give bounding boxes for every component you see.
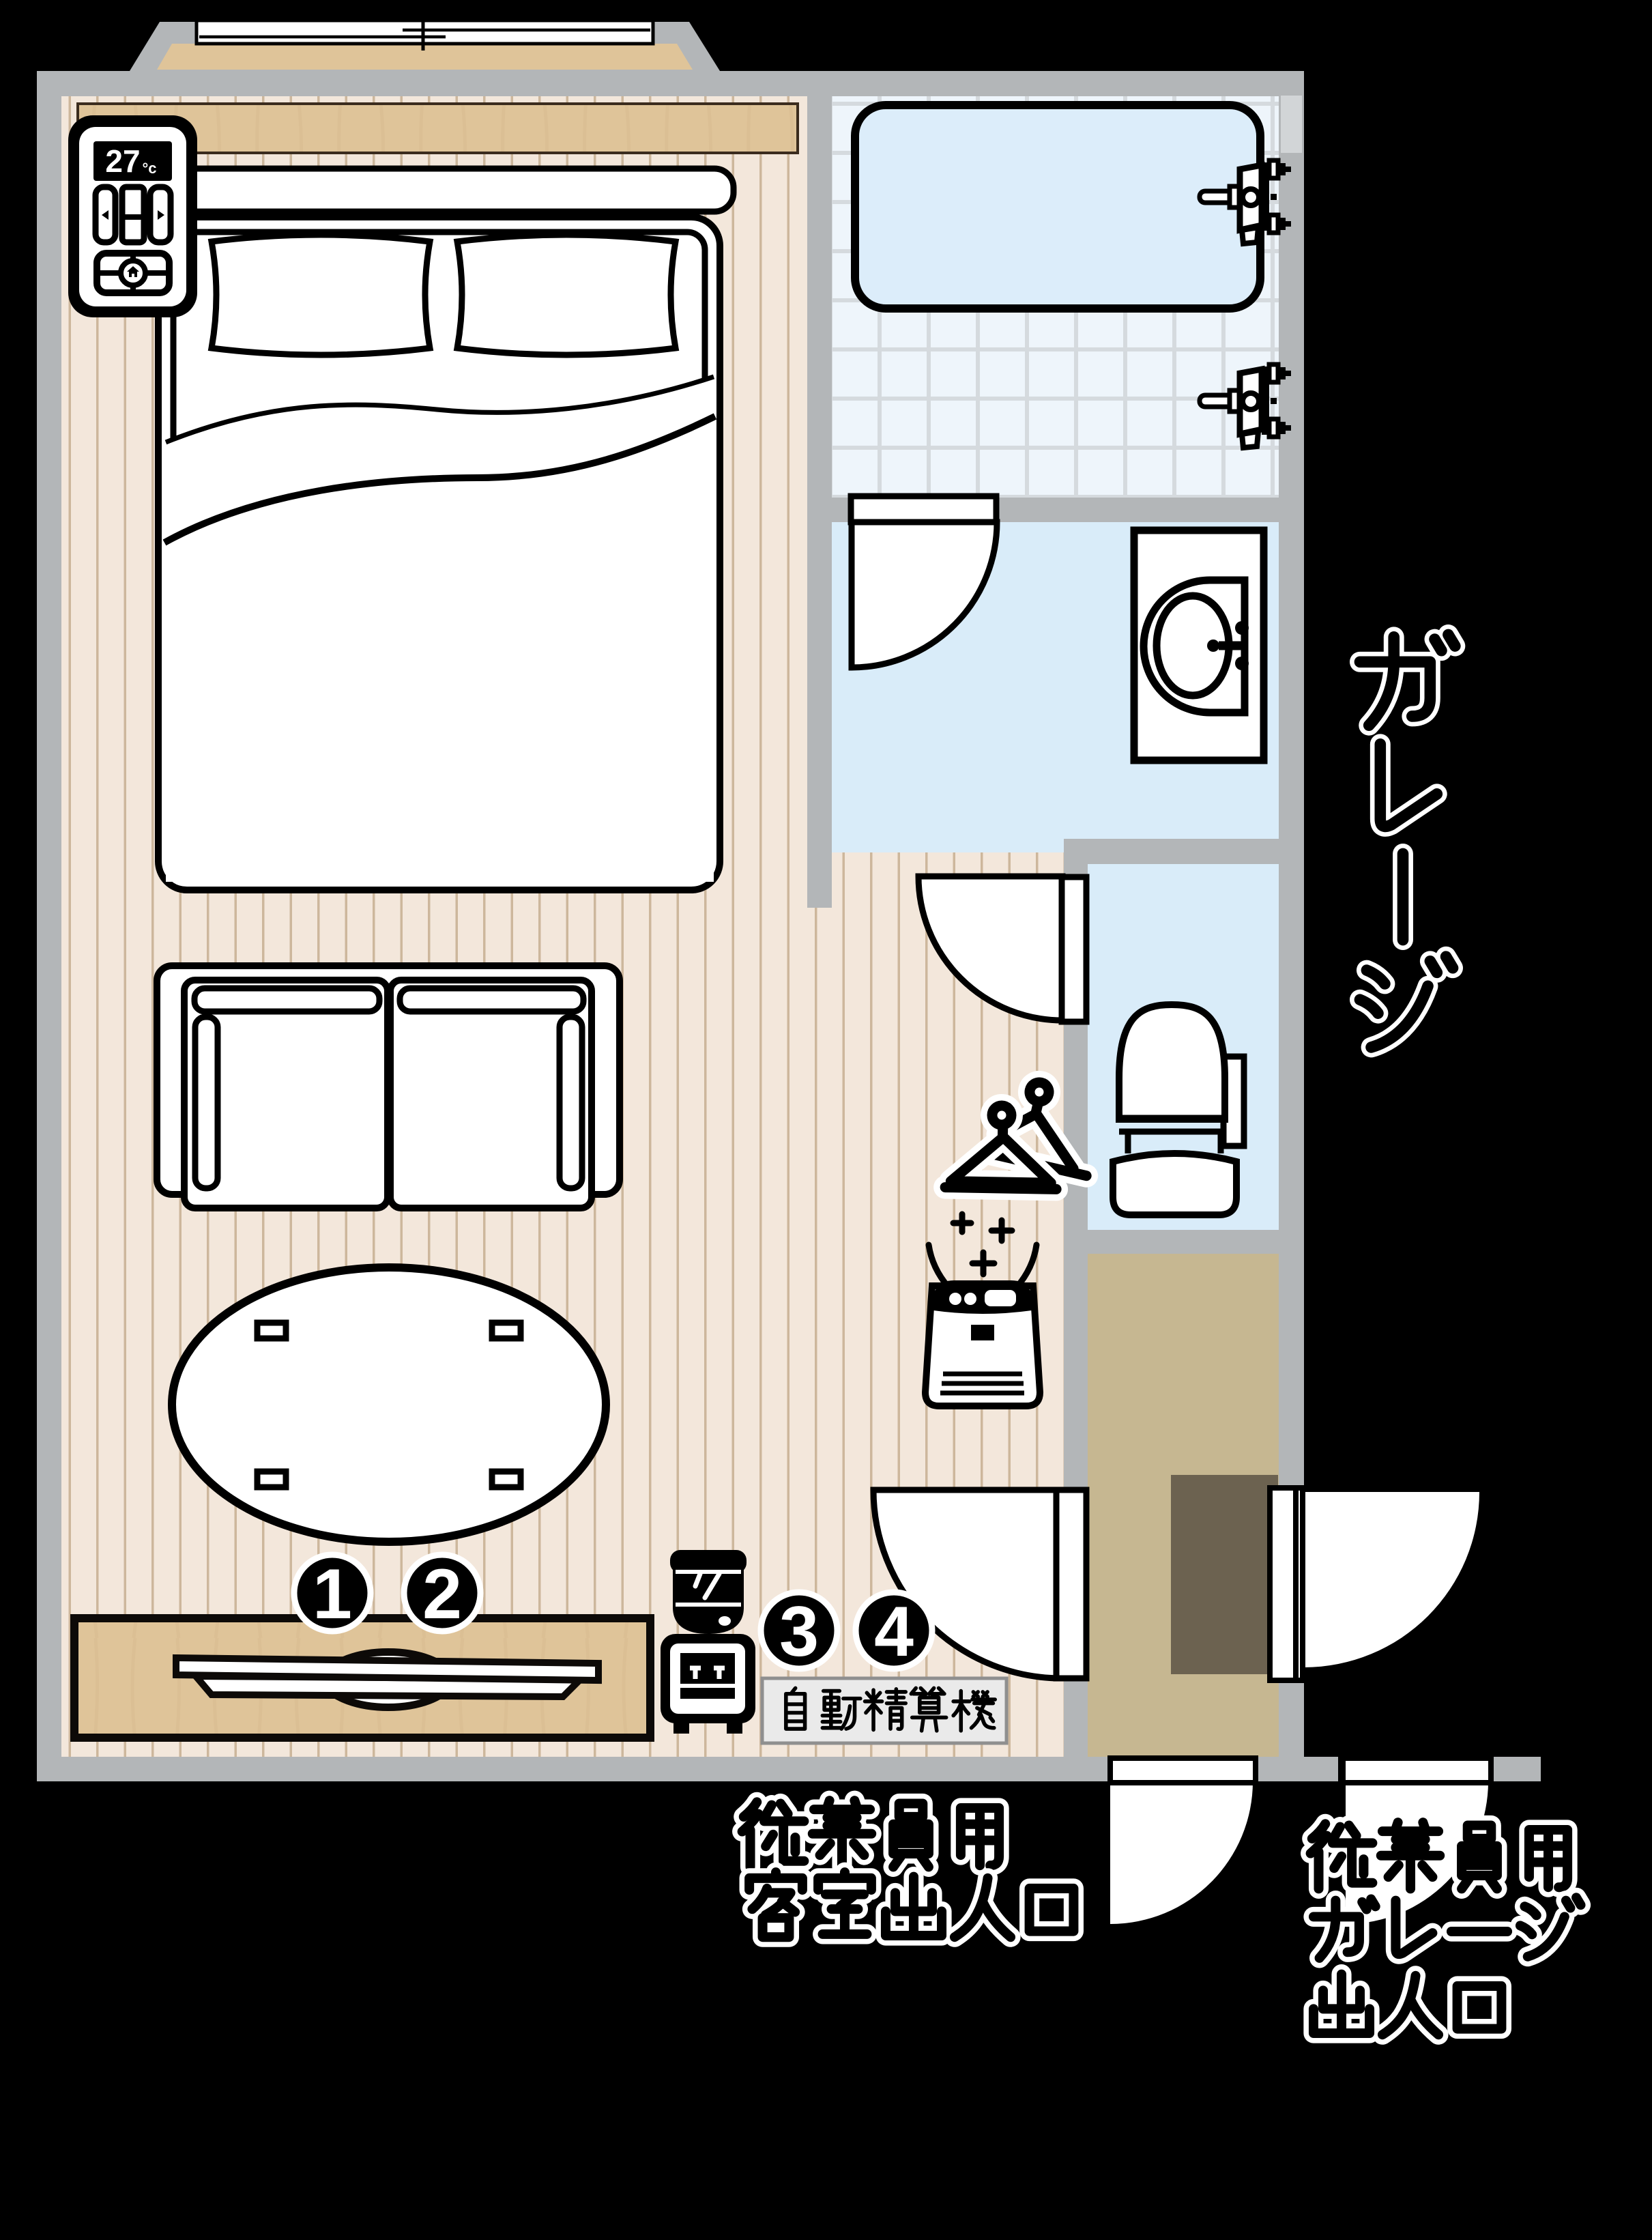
- svg-text:1: 1: [313, 1555, 352, 1634]
- svg-text:2: 2: [422, 1555, 462, 1634]
- svg-text:°c: °c: [142, 160, 156, 177]
- svg-text:4: 4: [874, 1592, 914, 1671]
- svg-text:27: 27: [105, 143, 140, 179]
- svg-text:3: 3: [779, 1592, 819, 1671]
